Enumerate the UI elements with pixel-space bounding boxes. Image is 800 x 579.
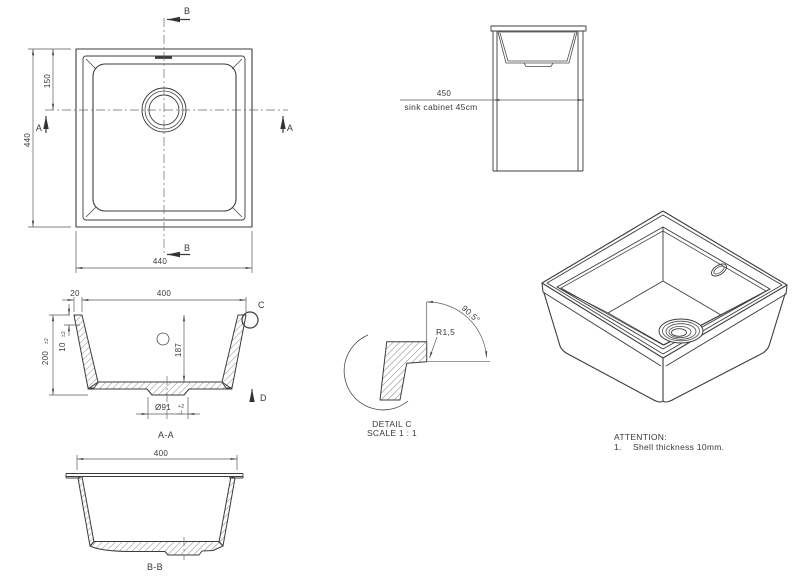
section-bb-title: B-B	[147, 562, 163, 572]
cabinet-caption: sink cabinet 45cm	[404, 102, 477, 112]
detail-radius-label: R1,5	[436, 327, 455, 337]
aa-dim-depth-label: 187	[174, 343, 183, 357]
section-aa-view: 400 20 200 ±2 10 ±2 187 Ø91 +2 -1 C D A-…	[41, 289, 267, 440]
cabinet-view: 450 sink cabinet 45cm	[400, 26, 586, 171]
aa-dim-drain-tol-plus: +2	[178, 404, 184, 410]
sink-technical-drawing: 440 150 440 A A B B 450 sink cabinet 45c…	[0, 0, 800, 579]
aa-dim-flange-label: 20	[70, 289, 80, 298]
bb-bottom-shell	[90, 542, 223, 556]
bb-dim-width-label: 400	[154, 449, 168, 458]
countertop	[491, 26, 586, 31]
plan-bowl-edge	[93, 64, 236, 211]
attention-item-text: Shell thickness 10mm.	[633, 442, 724, 452]
iso-body-right-edge	[663, 294, 785, 402]
plan-dim-offset-label: 150	[43, 74, 52, 88]
aa-left-wall	[74, 315, 98, 388]
notes: ATTENTION: 1. Shell thickness 10mm.	[614, 432, 724, 452]
undermount-bowl-profile	[498, 32, 577, 67]
attention-heading: ATTENTION:	[614, 432, 667, 442]
aa-dim-height-label: 200	[41, 351, 50, 365]
bb-rim-lines	[66, 474, 243, 479]
detail-scale: SCALE 1 : 1	[367, 428, 417, 438]
section-label-a-left: A	[36, 123, 42, 133]
plan-view: 440 150 440 A A B B	[23, 6, 293, 273]
aa-right-wall	[222, 315, 246, 388]
plan-dim-width-label: 440	[153, 257, 167, 266]
detail-c-marker-label: C	[258, 300, 265, 310]
detail-c-view: R1,5 90.5° DETAIL C SCALE 1 : 1	[344, 302, 490, 438]
section-aa-title: A-A	[158, 430, 174, 440]
aa-dim-drain-label: Ø91	[155, 403, 171, 412]
section-bb-view: 400 B-B	[66, 449, 243, 572]
aa-bottom-shell	[88, 382, 232, 395]
aa-dim-shell-tol: ±2	[61, 331, 67, 337]
detail-radius-leader	[430, 337, 438, 358]
bb-left-wall	[78, 477, 94, 547]
aa-dim-drain-tol-minus: -1	[178, 411, 183, 417]
section-label-b-bottom: B	[184, 243, 190, 253]
aa-dim-height-tol: ±2	[44, 338, 50, 344]
cabinet-dim-label: 450	[437, 89, 451, 98]
section-label-a-right: A	[287, 123, 293, 133]
aa-dim-inner-width-label: 400	[157, 289, 171, 298]
aa-dim-shell-label: 10	[58, 342, 67, 352]
section-label-b-top: B	[184, 6, 190, 16]
attention-item-number: 1.	[614, 442, 622, 452]
detail-wall-section	[380, 342, 427, 400]
plan-dim-height-label: 440	[23, 133, 32, 147]
technical-drawing-sheet: 440 150 440 A A B B 450 sink cabinet 45c…	[0, 0, 800, 579]
direction-label-d: D	[260, 393, 267, 403]
bb-right-wall	[219, 477, 235, 547]
aa-overflow-hole	[157, 333, 169, 345]
plan-extension-lines	[28, 49, 252, 273]
isometric-view	[542, 211, 787, 402]
